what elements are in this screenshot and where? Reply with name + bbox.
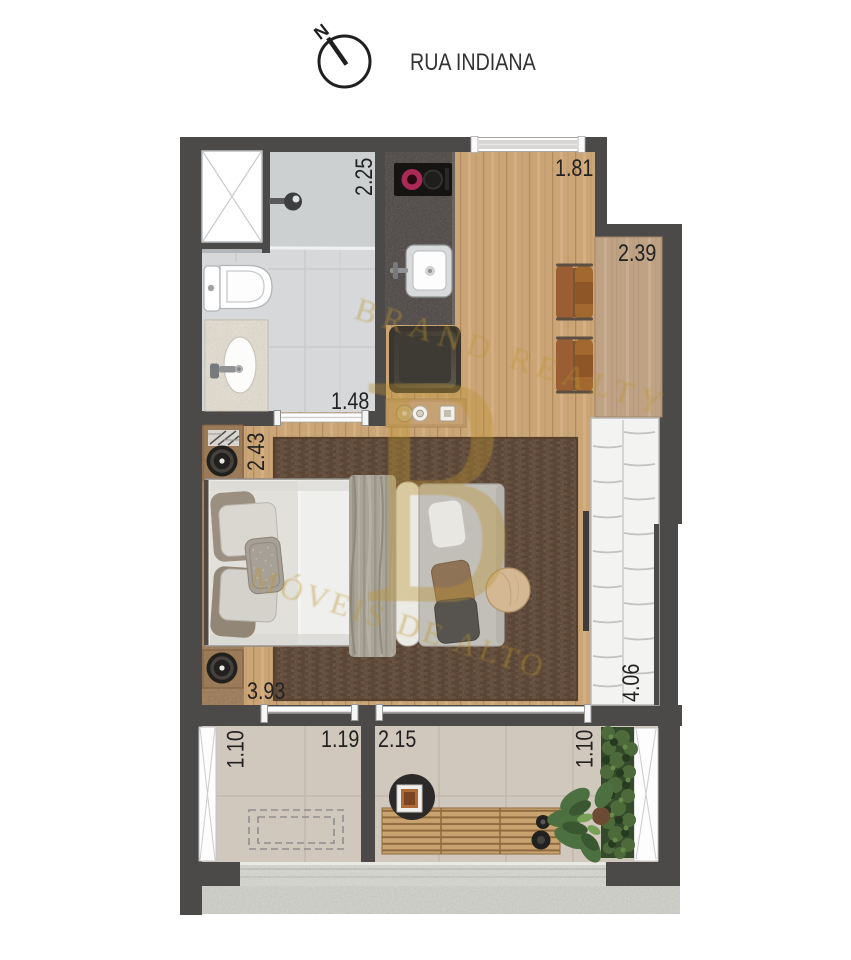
svg-text:2.43: 2.43: [242, 433, 269, 471]
svg-text:1.48: 1.48: [331, 387, 369, 414]
svg-text:1.10: 1.10: [222, 730, 249, 768]
svg-text:2.15: 2.15: [378, 725, 416, 752]
svg-text:4.06: 4.06: [617, 664, 644, 702]
svg-text:1.10: 1.10: [571, 730, 598, 768]
svg-text:1.19: 1.19: [321, 725, 359, 752]
svg-text:3.93: 3.93: [247, 677, 285, 704]
svg-text:2.25: 2.25: [350, 158, 377, 196]
svg-text:RUA INDIANA: RUA INDIANA: [410, 48, 536, 75]
svg-text:2.39: 2.39: [618, 239, 656, 266]
svg-text:1.81: 1.81: [555, 154, 593, 181]
